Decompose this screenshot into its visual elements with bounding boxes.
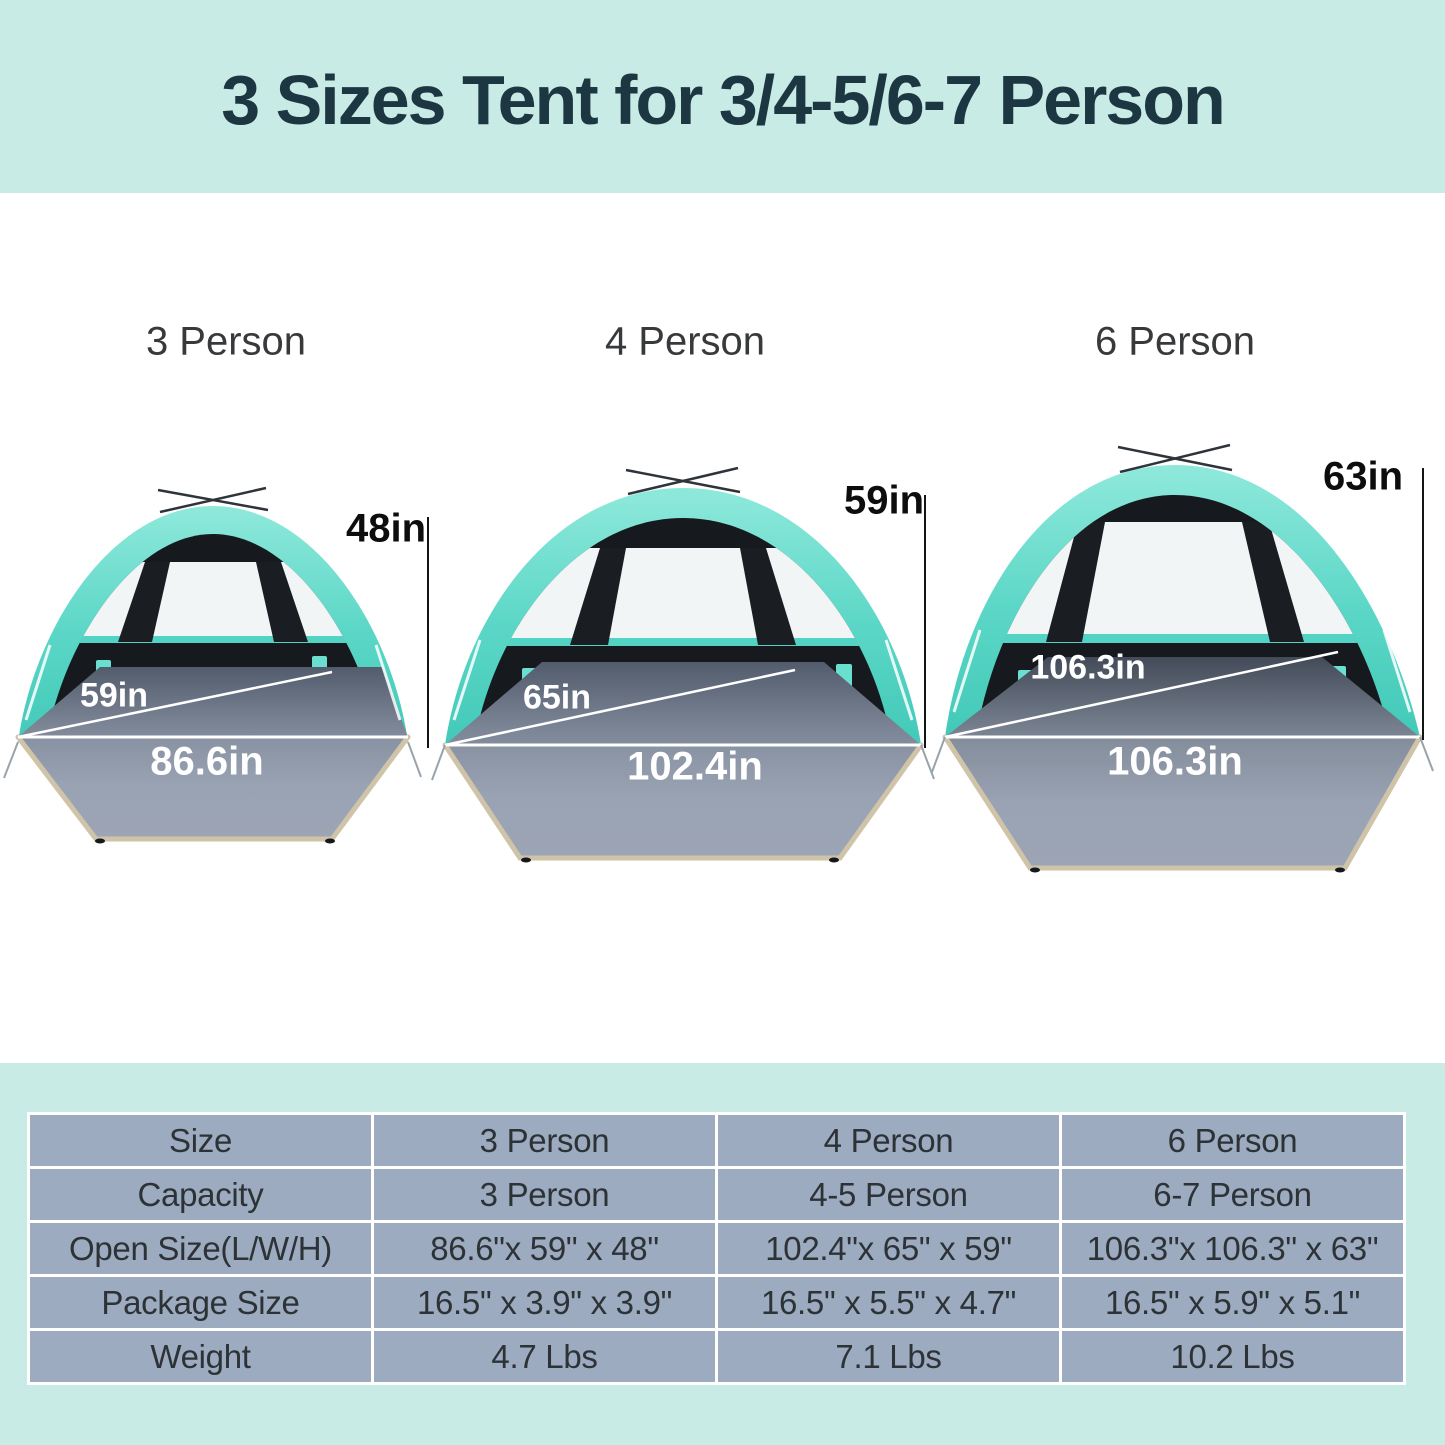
spec-table: Size 3 Person 4 Person 6 Person Capacity… [27, 1112, 1406, 1385]
product-infographic: 3 Sizes Tent for 3/4-5/6-7 Person 3 Pers… [0, 0, 1445, 1445]
spec-row-label: Capacity [30, 1169, 371, 1220]
width-label-tent-3: 106.3in [1107, 740, 1243, 785]
spec-cell: 4-5 Person [718, 1169, 1059, 1220]
spec-row-label: Open Size(L/W/H) [30, 1223, 371, 1274]
spec-cell: 4.7 Lbs [374, 1331, 715, 1382]
spec-cell: 6 Person [1062, 1115, 1403, 1166]
spec-cell: 16.5" x 5.5" x 4.7" [718, 1277, 1059, 1328]
height-label-tent-3: 63in [1323, 455, 1403, 500]
spec-row-label: Package Size [30, 1277, 371, 1328]
tent-size-label-4-person: 4 Person [605, 320, 765, 365]
tent-size-label-3-person: 3 Person [146, 320, 306, 365]
spec-cell: 3 Person [374, 1115, 715, 1166]
spec-row-label: Weight [30, 1331, 371, 1382]
height-label-tent-2: 59in [844, 479, 924, 524]
depth-label-tent-2: 65in [523, 679, 591, 718]
tent-size-label-6-person: 6 Person [1095, 320, 1255, 365]
spec-row-label: Size [30, 1115, 371, 1166]
spec-cell: 6-7 Person [1062, 1169, 1403, 1220]
width-label-tent-1: 86.6in [150, 740, 263, 785]
depth-label-tent-1: 59in [80, 677, 148, 716]
spec-cell: 106.3"x 106.3" x 63" [1062, 1223, 1403, 1274]
width-label-tent-2: 102.4in [627, 745, 763, 790]
spec-cell: 102.4"x 65" x 59" [718, 1223, 1059, 1274]
spec-cell: 4 Person [718, 1115, 1059, 1166]
depth-label-tent-3: 106.3in [1030, 649, 1145, 688]
header-banner: 3 Sizes Tent for 3/4-5/6-7 Person [0, 0, 1445, 193]
height-label-tent-1: 48in [346, 507, 426, 552]
spec-cell: 16.5" x 5.9" x 5.1" [1062, 1277, 1403, 1328]
spec-cell: 3 Person [374, 1169, 715, 1220]
spec-cell: 10.2 Lbs [1062, 1331, 1403, 1382]
spec-cell: 86.6"x 59" x 48" [374, 1223, 715, 1274]
page-title: 3 Sizes Tent for 3/4-5/6-7 Person [221, 54, 1224, 140]
spec-cell: 7.1 Lbs [718, 1331, 1059, 1382]
spec-cell: 16.5" x 3.9" x 3.9" [374, 1277, 715, 1328]
